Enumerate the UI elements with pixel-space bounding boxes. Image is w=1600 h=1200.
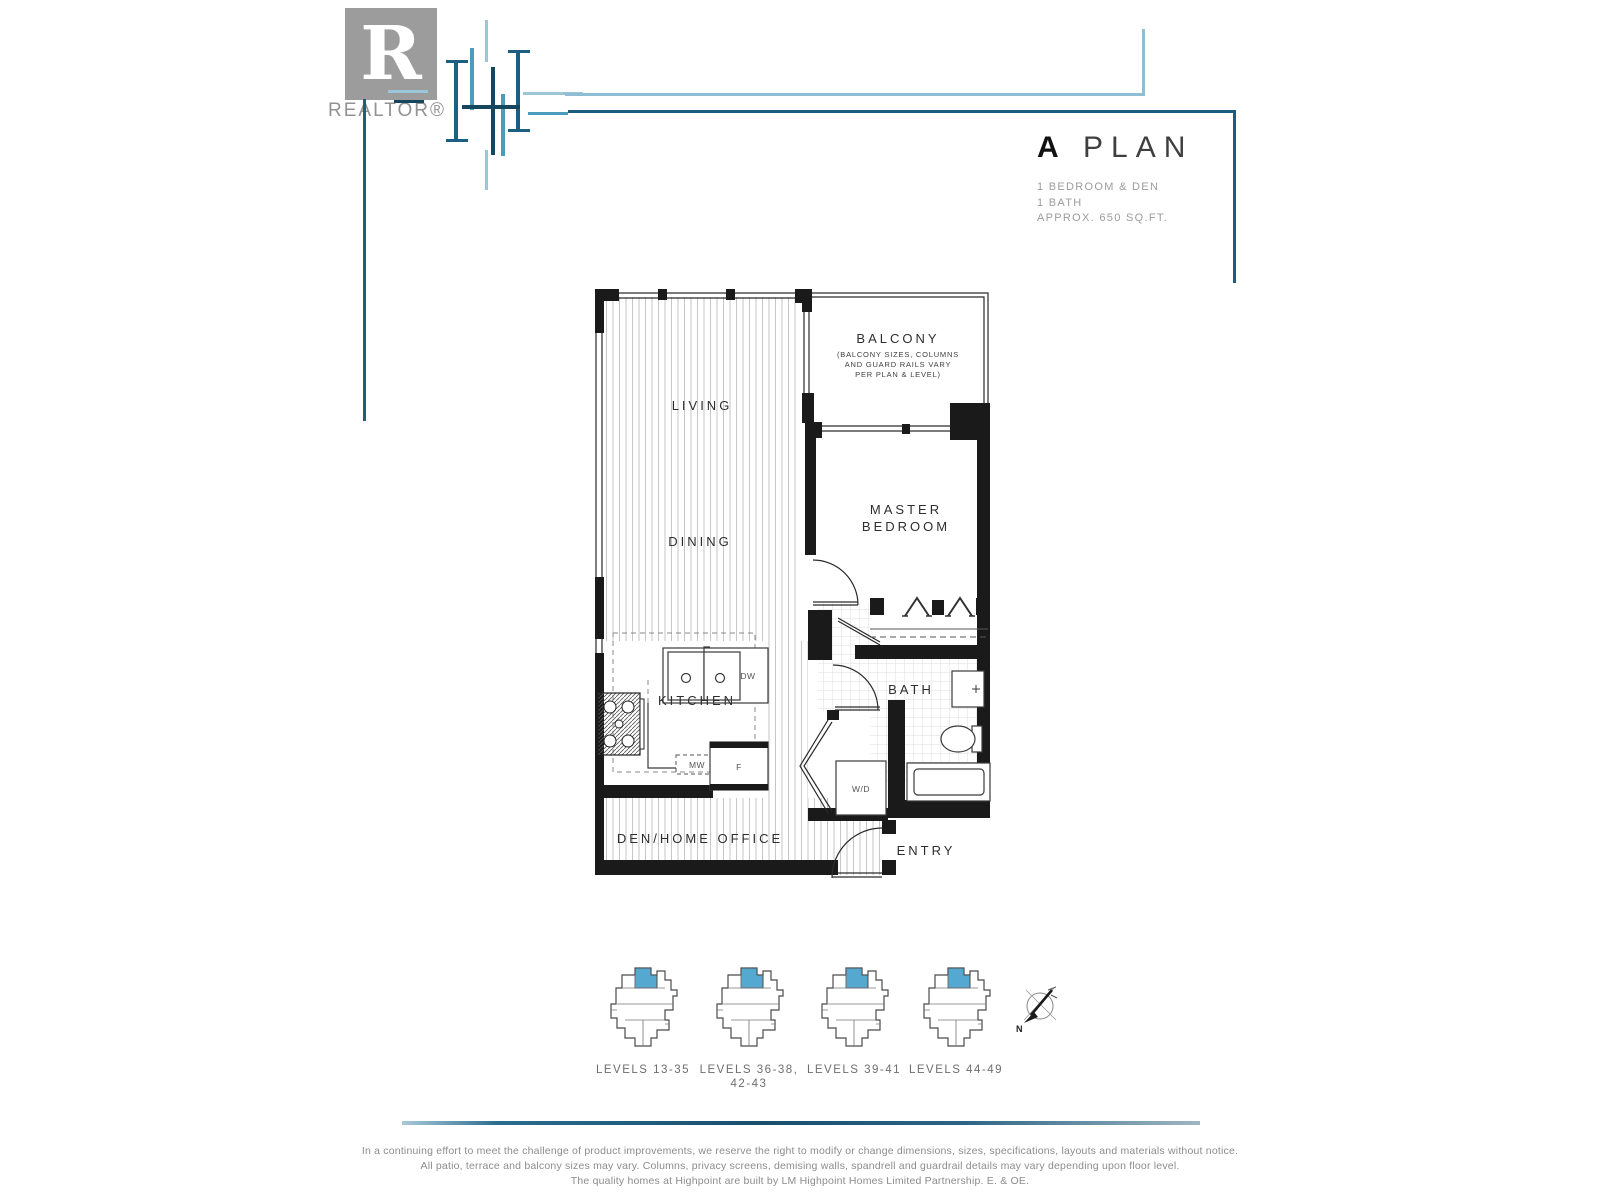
balcony-note-2: AND GUARD RAILS VARY [845,360,952,369]
bath-label: BATH [888,682,934,697]
plan-word: PLAN [1083,131,1193,164]
keyplate-levels-36-43 [717,968,783,1046]
disclaimer-line-3: The quality homes at Highpoint are built… [300,1174,1300,1189]
floorplan-drawing: LIVING DINING BALCONY MASTER BEDROOM KIT… [580,285,1000,885]
dishwasher-label: DW [740,671,755,681]
microwave-label: MW [689,760,705,770]
keyplate-levels-44-49 [924,968,990,1046]
kitchen-label: KITCHEN [658,693,736,708]
disclaimer-line-2: All patio, terrace and balcony sizes may… [300,1159,1300,1174]
living-label: LIVING [672,398,733,413]
compass-icon: N [1016,987,1057,1034]
footer-disclaimer: In a continuing effort to meet the chall… [300,1144,1300,1189]
light-blue-vertical-line [1142,29,1145,96]
washer-dryer-label: W/D [852,784,870,794]
teal-vertical-line [363,99,366,421]
balcony-label: BALCONY [856,331,939,346]
dark-blue-horizontal-line [568,110,1236,113]
entry-label: ENTRY [897,843,956,858]
plan-details: 1 BEDROOM & DEN 1 BATH APPROX. 650 SQ.FT… [1037,180,1277,227]
balcony-note-1: (BALCONY SIZES, COLUMNS [837,350,959,359]
keyplate-caption-2: LEVELS 36-38, 42-43 [689,1063,809,1091]
balcony-note-3: PER PLAN & LEVEL) [855,370,941,379]
bath-vanity [952,671,984,707]
plan-detail-bath: 1 BATH [1037,196,1277,212]
bathtub [907,763,990,801]
footer-gradient-line [402,1121,1200,1125]
plan-detail-sqft: APPROX. 650 SQ.FT. [1037,211,1277,227]
highpoint-logo [388,12,588,197]
plan-letter: A [1037,131,1067,164]
compass-n-label: N [1016,1024,1023,1034]
master-label-2: BEDROOM [862,519,950,534]
plan-title: A PLAN [1037,131,1297,165]
keyplate-caption-4: LEVELS 44-49 [896,1063,1016,1077]
stove [598,693,644,755]
toilet [941,726,982,752]
master-label-1: MASTER [870,502,942,517]
light-blue-horizontal-line [565,93,1145,96]
plan-detail-bedrooms: 1 BEDROOM & DEN [1037,180,1277,196]
dining-label: DINING [668,534,732,549]
keyplate-levels-39-41 [822,968,888,1046]
keyplate-caption-1: LEVELS 13-35 [583,1063,703,1077]
fridge-label: F [736,762,742,772]
floorplan-page: R REALTOR® A PLAN 1 BEDROOM & D [0,0,1600,1200]
keyplates-row: N [585,958,1075,1058]
keyplate-levels-13-35 [611,968,677,1046]
den-label: DEN/HOME OFFICE [617,831,783,846]
closet-shelf [870,629,988,637]
disclaimer-line-1: In a continuing effort to meet the chall… [300,1144,1300,1159]
balcony-outline [804,293,988,405]
